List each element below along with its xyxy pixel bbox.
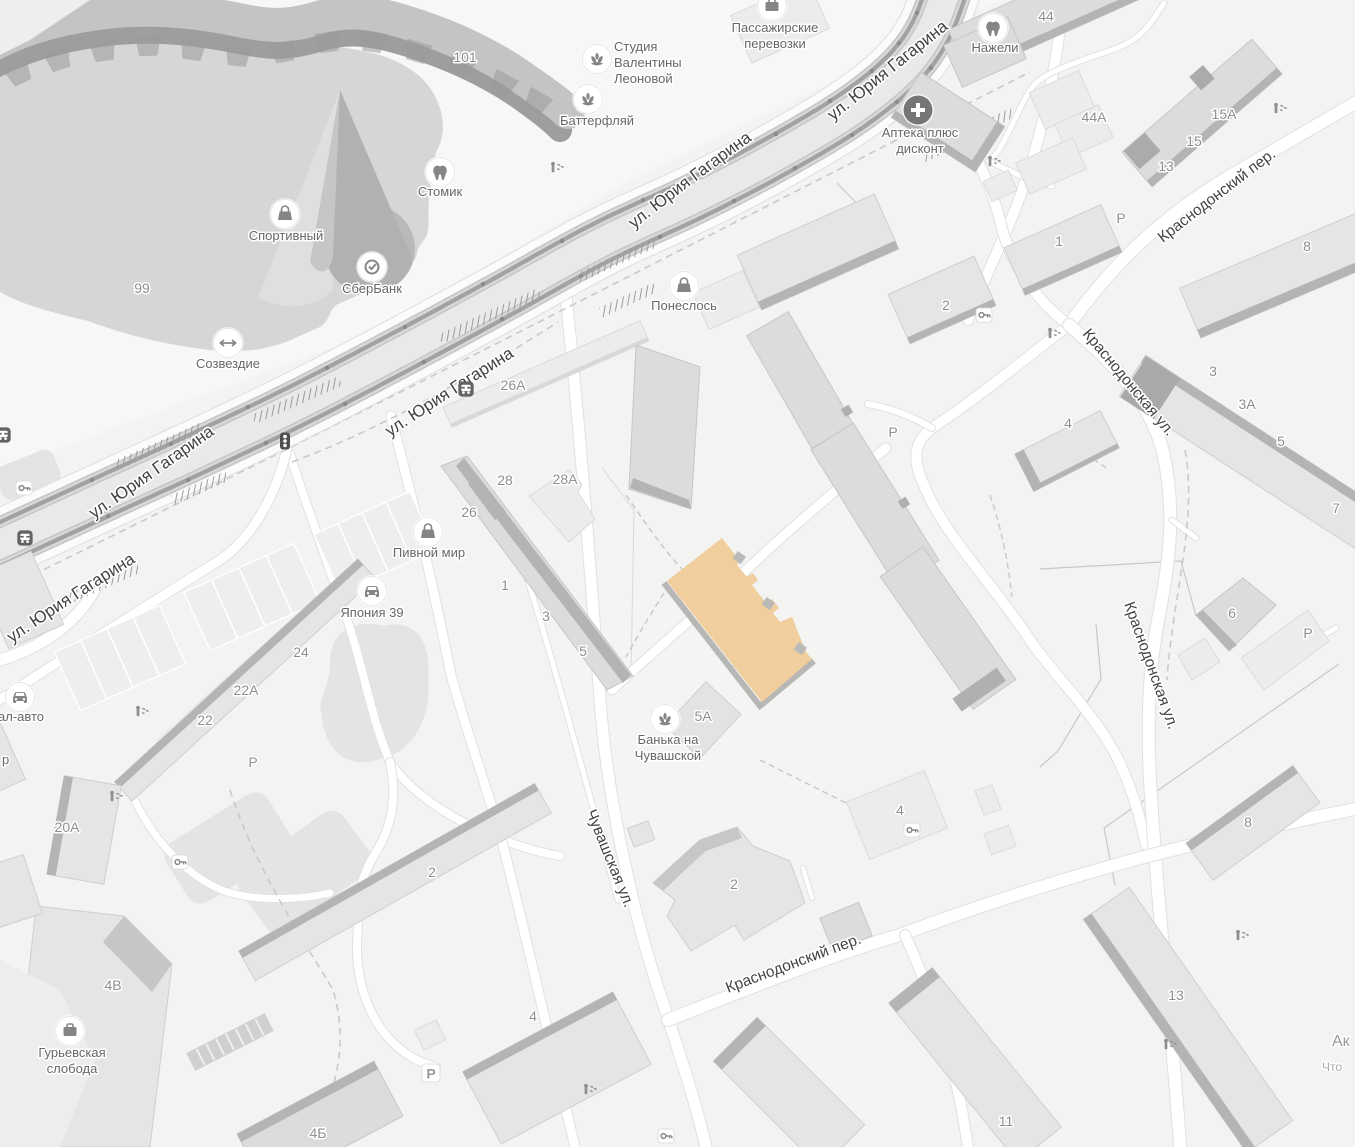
svg-text:8: 8 [1303, 238, 1311, 254]
svg-text:слобода: слобода [47, 1061, 98, 1076]
svg-text:P: P [888, 424, 897, 440]
svg-text:Баттерфляй: Баттерфляй [560, 113, 634, 128]
svg-text:P: P [426, 1066, 435, 1082]
svg-text:ал-авто: ал-авто [0, 709, 44, 724]
svg-text:4Б: 4Б [310, 1125, 327, 1141]
svg-text:99: 99 [134, 280, 150, 296]
svg-text:P: P [248, 754, 257, 770]
svg-text:101: 101 [453, 49, 477, 65]
svg-text:Созвездие: Созвездие [196, 356, 260, 371]
svg-text:6: 6 [1228, 605, 1236, 621]
svg-text:Пассажирские: Пассажирские [732, 20, 819, 35]
svg-text:Понеслось: Понеслось [651, 298, 717, 313]
svg-text:Аптека плюс: Аптека плюс [882, 125, 959, 140]
svg-text:Банька на: Банька на [638, 732, 700, 747]
svg-text:Леоновой: Леоновой [614, 71, 673, 86]
svg-text:44А: 44А [1082, 109, 1108, 125]
svg-text:Валентины: Валентины [614, 55, 682, 70]
svg-text:P: P [1303, 625, 1312, 641]
svg-text:11: 11 [999, 1113, 1014, 1129]
svg-text:3: 3 [542, 608, 550, 624]
svg-text:44: 44 [1038, 8, 1054, 24]
svg-text:Ак: Ак [1332, 1033, 1351, 1050]
svg-text:2: 2 [428, 864, 436, 880]
svg-text:Гурьевская: Гурьевская [38, 1045, 105, 1060]
svg-text:Студия: Студия [614, 39, 657, 54]
svg-text:4В: 4В [104, 977, 121, 993]
svg-text:Япония 39: Япония 39 [340, 605, 403, 620]
svg-text:Нажели: Нажели [972, 40, 1019, 55]
svg-text:20А: 20А [55, 819, 81, 835]
svg-text:13: 13 [1158, 158, 1174, 174]
svg-text:24: 24 [293, 644, 309, 660]
svg-text:13: 13 [1168, 987, 1184, 1003]
svg-text:Стомик: Стомик [418, 184, 463, 199]
svg-text:Чувашской: Чувашской [635, 748, 701, 763]
svg-text:22: 22 [197, 712, 213, 728]
svg-text:P: P [1116, 210, 1125, 226]
svg-text:Пивной мир: Пивной мир [393, 545, 465, 560]
svg-text:4: 4 [896, 802, 904, 818]
svg-text:5А: 5А [694, 708, 712, 724]
svg-text:Что: Что [1322, 1060, 1342, 1074]
svg-text:перевозки: перевозки [744, 36, 805, 51]
svg-text:2: 2 [942, 297, 950, 313]
svg-text:28: 28 [497, 472, 513, 488]
svg-text:7: 7 [1332, 500, 1340, 516]
svg-text:5: 5 [579, 643, 587, 659]
svg-text:5: 5 [1277, 433, 1285, 449]
svg-text:3: 3 [1209, 363, 1217, 379]
svg-text:28А: 28А [553, 471, 579, 487]
svg-text:8: 8 [1244, 814, 1252, 830]
svg-text:2: 2 [730, 876, 738, 892]
svg-text:дисконт: дисконт [896, 141, 944, 156]
svg-text:26: 26 [461, 504, 477, 520]
svg-text:4: 4 [529, 1008, 537, 1024]
svg-text:р: р [2, 752, 9, 767]
svg-text:3А: 3А [1238, 396, 1256, 412]
svg-text:26А: 26А [501, 377, 527, 393]
svg-text:1: 1 [1055, 233, 1063, 249]
svg-text:22А: 22А [234, 682, 260, 698]
svg-text:15: 15 [1186, 133, 1202, 149]
svg-text:1: 1 [501, 577, 509, 593]
svg-text:4: 4 [1064, 415, 1072, 431]
svg-text:СберБанк: СберБанк [342, 281, 402, 296]
svg-text:15А: 15А [1212, 106, 1238, 122]
svg-text:Спортивный: Спортивный [249, 228, 324, 243]
